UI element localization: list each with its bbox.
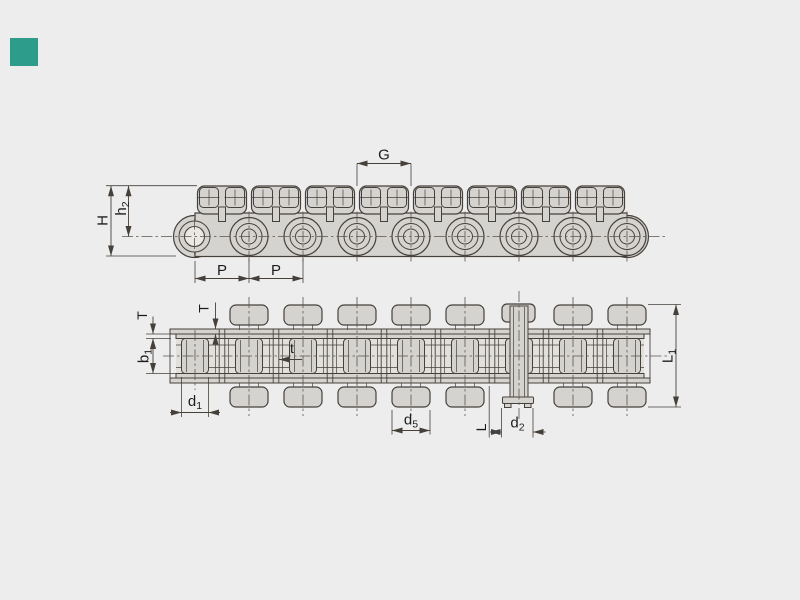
dimension-G: G <box>357 147 411 187</box>
dim-label-d5: d5 <box>404 412 418 431</box>
dim-label-H: H <box>95 215 112 226</box>
technical-drawing: H h2 G P P <box>0 0 800 600</box>
dim-label-t: t <box>290 340 294 356</box>
page: { "canvas": {"width": 800, "height": 600… <box>0 0 800 600</box>
cap-foot <box>505 404 512 408</box>
dim-label-P2: P <box>271 262 281 279</box>
plan-view: T T b1 t d1 d5 <box>134 291 681 438</box>
outer-plate-strip-top <box>170 329 650 334</box>
inner-plate-strip-top <box>176 334 644 339</box>
dimension-d5: d5 <box>392 410 430 435</box>
dim-label-P1: P <box>217 262 227 279</box>
dim-label-b1: b1 <box>136 349 155 363</box>
dimension-d2: d2 <box>502 408 546 438</box>
dimension-T-left: T <box>134 311 171 348</box>
dim-label-h2: h2 <box>113 201 132 215</box>
dimension-h2: h2 <box>113 186 132 237</box>
inner-plate-strip-bottom <box>176 374 644 379</box>
outer-plate-strip-bottom <box>170 378 650 383</box>
dim-label-d1: d1 <box>188 393 202 412</box>
dim-label-L: L <box>473 423 489 431</box>
cap-foot <box>525 404 532 408</box>
dimension-P: P P <box>195 259 303 283</box>
pin-bottom-cap <box>503 397 534 404</box>
side-view: H h2 G P P <box>95 147 669 284</box>
dim-label-L1: L1 <box>660 349 679 363</box>
dim-label-T2: T <box>196 304 212 313</box>
dim-label-d2: d2 <box>510 415 524 434</box>
dim-label-T1: T <box>134 311 150 320</box>
dim-label-G: G <box>378 147 390 164</box>
